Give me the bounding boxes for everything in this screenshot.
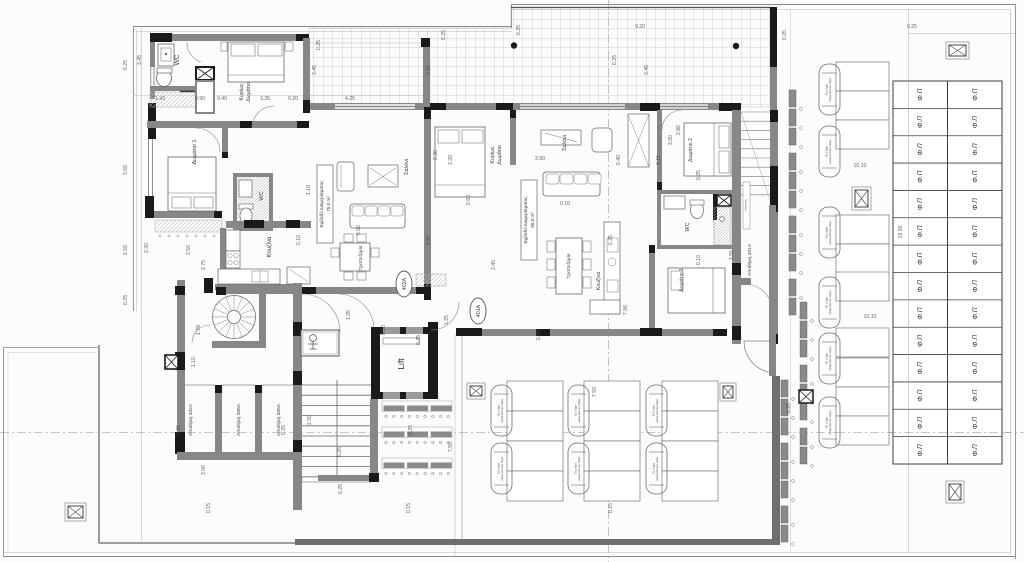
svg-text:0.25: 0.25 <box>786 403 792 413</box>
svg-text:2Μ χ 4μρν: 2Μ χ 4μρν <box>826 296 829 308</box>
svg-text:0.25: 0.25 <box>782 30 788 40</box>
svg-text:WC: WC <box>259 191 265 200</box>
svg-text:Κουζίνα: Κουζίνα <box>267 236 273 258</box>
svg-text:0.25: 0.25 <box>408 425 414 435</box>
svg-text:1.10: 1.10 <box>306 185 312 195</box>
svg-text:Αφαιρ.Θεσεων Παρκ.: Αφαιρ.Θεσεων Παρκ. <box>655 456 659 481</box>
svg-text:2.30: 2.30 <box>433 150 439 160</box>
svg-text:Lift: Lift <box>396 358 406 370</box>
svg-text:Φ.Π: Φ.Π <box>917 389 924 401</box>
svg-text:7.96: 7.96 <box>623 305 629 315</box>
svg-text:0.40: 0.40 <box>616 155 622 165</box>
svg-text:3.00: 3.00 <box>668 135 674 145</box>
svg-text:3.45: 3.45 <box>644 65 650 75</box>
svg-text:2.30: 2.30 <box>144 243 150 253</box>
svg-text:Δωμάτιο 1: Δωμάτιο 1 <box>678 268 685 292</box>
svg-text:75,0 m²: 75,0 m² <box>326 196 331 212</box>
svg-text:0.25: 0.25 <box>416 335 422 345</box>
svg-text:3.00: 3.00 <box>123 165 129 175</box>
svg-text:0.25: 0.25 <box>426 65 432 75</box>
svg-text:5.25: 5.25 <box>337 447 343 457</box>
svg-text:2.80: 2.80 <box>676 125 682 135</box>
svg-text:2Μ χ 4μρν: 2Μ χ 4μρν <box>826 83 829 95</box>
svg-text:0.30: 0.30 <box>176 425 182 435</box>
svg-text:Αφαιρ.Θεσεων Παρκ.: Αφαιρ.Θεσεων Παρκ. <box>828 290 832 315</box>
svg-text:Φ.Π: Φ.Π <box>972 417 979 429</box>
svg-text:2Μ χ 4μρν: 2Μ χ 4μρν <box>653 462 656 474</box>
svg-text:1.43: 1.43 <box>155 96 165 102</box>
svg-text:Εμβαδό Διαμερίσματος: Εμβαδό Διαμερίσματος <box>318 180 324 228</box>
svg-text:0.10: 0.10 <box>696 255 702 265</box>
svg-text:3.45: 3.45 <box>312 65 318 75</box>
svg-text:0.25: 0.25 <box>907 24 917 30</box>
svg-text:0.20: 0.20 <box>288 96 298 102</box>
svg-text:2Μ χ 4μρν: 2Μ χ 4μρν <box>653 404 656 416</box>
svg-text:Φ.Π: Φ.Π <box>972 116 979 128</box>
svg-text:Φ.Π: Φ.Π <box>917 198 924 210</box>
svg-text:0.15: 0.15 <box>206 503 212 513</box>
svg-text:Φ.Π: Φ.Π <box>917 362 924 374</box>
svg-text:Φ.Π: Φ.Π <box>917 116 924 128</box>
svg-text:2Μ χ 4μρν: 2Μ χ 4μρν <box>575 404 578 416</box>
svg-text:10,10: 10,10 <box>854 163 867 169</box>
svg-text:Κουζίνα: Κουζίνα <box>596 272 602 290</box>
svg-text:Φ.Π: Φ.Π <box>917 143 924 155</box>
svg-text:1.25: 1.25 <box>346 310 352 320</box>
svg-text:Φ.Π: Φ.Π <box>972 280 979 292</box>
svg-text:Αποθήκη 306Α: Αποθήκη 306Α <box>235 403 242 436</box>
svg-text:3.15: 3.15 <box>656 155 662 165</box>
svg-text:0.25: 0.25 <box>123 60 129 70</box>
svg-text:Φ.Π: Φ.Π <box>972 444 979 456</box>
svg-text:Κυρίως: Κυρίως <box>490 146 496 163</box>
svg-text:Φ.Π: Φ.Π <box>917 444 924 456</box>
svg-text:Αφαιρ.Θεσεων Παρκ.: Αφαιρ.Θεσεων Παρκ. <box>500 456 504 481</box>
svg-text:0.25: 0.25 <box>696 170 702 180</box>
svg-text:9.20: 9.20 <box>635 24 645 30</box>
svg-text:Φ.Π: Φ.Π <box>917 88 924 100</box>
svg-text:0.25: 0.25 <box>338 484 344 494</box>
svg-text:2Μ χ 4μρν: 2Μ χ 4μρν <box>498 404 501 416</box>
svg-text:0.25: 0.25 <box>608 235 614 245</box>
svg-text:Σαλόνι: Σαλόνι <box>561 134 568 151</box>
svg-text:Αφαιρ.Θεσεων Παρκ.: Αφαιρ.Θεσεων Παρκ. <box>828 346 832 371</box>
svg-text:Φ.Π: Φ.Π <box>917 225 924 237</box>
svg-text:0.25: 0.25 <box>441 30 447 40</box>
svg-text:2Μ χ 4μρν: 2Μ χ 4μρν <box>826 416 829 428</box>
svg-text:Αποθήκη 401Α: Αποθήκη 401Α <box>746 243 753 276</box>
svg-text:WC: WC <box>685 222 691 231</box>
svg-text:2.75: 2.75 <box>201 260 207 270</box>
svg-text:3.45: 3.45 <box>137 55 143 65</box>
svg-text:Τραπεζαρία: Τραπεζαρία <box>566 253 572 278</box>
svg-text:Φ.Π: Φ.Π <box>917 253 924 265</box>
svg-text:10,10: 10,10 <box>864 314 877 320</box>
svg-text:Αφαιρ.Θεσεων Παρκ.: Αφαιρ.Θεσεων Παρκ. <box>828 139 832 164</box>
svg-text:1.25: 1.25 <box>444 315 450 325</box>
svg-text:19,90: 19,90 <box>898 225 904 238</box>
svg-text:0.90: 0.90 <box>195 96 205 102</box>
svg-text:Αφαιρ.Θεσεων Παρκ.: Αφαιρ.Θεσεων Παρκ. <box>577 456 581 481</box>
svg-text:0.15: 0.15 <box>608 503 614 513</box>
svg-text:Φ.Π: Φ.Π <box>972 335 979 347</box>
svg-text:0.25: 0.25 <box>612 55 618 65</box>
svg-text:Φ.Π: Φ.Π <box>972 389 979 401</box>
svg-text:Αφαιρ.Θεσεων Παρκ.: Αφαιρ.Θεσεων Παρκ. <box>828 410 832 435</box>
svg-text:Φ.Π: Φ.Π <box>972 225 979 237</box>
svg-text:1.78: 1.78 <box>196 325 202 335</box>
svg-text:401A: 401A <box>476 304 482 317</box>
svg-text:Σαλόνι: Σαλόνι <box>403 158 410 175</box>
svg-text:2.50: 2.50 <box>123 245 129 255</box>
svg-text:7.50: 7.50 <box>592 387 598 397</box>
svg-text:Φ.Π: Φ.Π <box>972 362 979 374</box>
svg-text:Αφαιρ.Θεσεων Παρκ.: Αφαιρ.Θεσεων Παρκ. <box>577 398 581 423</box>
svg-text:Δωμάτιο: Δωμάτιο <box>245 82 252 102</box>
svg-text:2Μ χ 4μρν: 2Μ χ 4μρν <box>826 226 829 238</box>
svg-text:Φ.Π: Φ.Π <box>972 253 979 265</box>
svg-text:3.90: 3.90 <box>535 156 545 162</box>
svg-text:95,0 m²: 95,0 m² <box>530 212 535 228</box>
svg-text:Δωμάτιο: Δωμάτιο <box>496 145 503 165</box>
svg-text:Εμβαδό Διαμερίσματος: Εμβαδό Διαμερίσματος <box>522 196 528 244</box>
svg-text:Αφαιρ.Θεσεων Παρκ.: Αφαιρ.Θεσεων Παρκ. <box>655 398 659 423</box>
svg-text:Φ.Π: Φ.Π <box>972 88 979 100</box>
svg-text:0.25: 0.25 <box>516 25 522 35</box>
svg-text:4.25: 4.25 <box>345 96 355 102</box>
svg-text:Δωμάτιο 2: Δωμάτιο 2 <box>687 138 694 162</box>
svg-text:0.10: 0.10 <box>296 235 302 245</box>
svg-text:Δωμάτιο 1: Δωμάτιο 1 <box>191 140 198 165</box>
svg-text:Φ.Π: Φ.Π <box>972 170 979 182</box>
svg-text:Τραπεζαρία: Τραπεζαρία <box>358 245 364 270</box>
svg-text:0.25: 0.25 <box>426 235 432 245</box>
svg-text:2.45: 2.45 <box>491 260 497 270</box>
svg-text:Φ.Π: Φ.Π <box>972 198 979 210</box>
svg-text:2Μ χ 4μρν: 2Μ χ 4μρν <box>575 462 578 474</box>
svg-text:0.15: 0.15 <box>406 503 412 513</box>
svg-text:Φ.Π: Φ.Π <box>917 170 924 182</box>
svg-text:Φ.Π: Φ.Π <box>917 335 924 347</box>
svg-text:Φ.Π: Φ.Π <box>972 143 979 155</box>
svg-text:Αποθήκη 402Α: Αποθήκη 402Α <box>187 403 194 436</box>
svg-text:Αφαιρ.Θεσεων Παρκ.: Αφαιρ.Θεσεων Παρκ. <box>500 398 504 423</box>
svg-text:0.25: 0.25 <box>536 330 542 340</box>
svg-text:7,50: 7,50 <box>448 442 454 452</box>
svg-text:0.40: 0.40 <box>217 96 227 102</box>
svg-text:0.25: 0.25 <box>316 40 322 50</box>
svg-text:Κυρίως: Κυρίως <box>239 83 245 100</box>
svg-text:0.60: 0.60 <box>466 195 472 205</box>
svg-text:0.10: 0.10 <box>560 201 570 207</box>
svg-text:Φ.Π: Φ.Π <box>917 307 924 319</box>
svg-text:2Μ χ 4μρν: 2Μ χ 4μρν <box>498 462 501 474</box>
svg-text:WC: WC <box>174 54 181 65</box>
svg-text:0.25: 0.25 <box>281 425 287 435</box>
svg-text:5.60: 5.60 <box>356 225 362 235</box>
svg-text:Φ.Π: Φ.Π <box>917 417 924 429</box>
svg-text:3.20: 3.20 <box>448 155 454 165</box>
svg-text:3.35: 3.35 <box>260 96 270 102</box>
svg-text:2Μ χ 4μρν: 2Μ χ 4μρν <box>826 145 829 157</box>
svg-text:3.06: 3.06 <box>201 465 207 475</box>
svg-text:0.10: 0.10 <box>381 325 387 335</box>
svg-text:Φ.Π: Φ.Π <box>917 280 924 292</box>
svg-text:2Μ χ 4μρν: 2Μ χ 4μρν <box>826 352 829 364</box>
svg-text:402A: 402A <box>402 277 408 290</box>
svg-text:2.55: 2.55 <box>729 250 735 260</box>
svg-text:2.50: 2.50 <box>186 245 192 255</box>
svg-text:Φ.Π: Φ.Π <box>972 307 979 319</box>
svg-text:Αφαιρ.Θεσεων Παρκ.: Αφαιρ.Θεσεων Παρκ. <box>828 220 832 245</box>
svg-text:1.10: 1.10 <box>191 357 197 367</box>
svg-text:0.25: 0.25 <box>123 295 129 305</box>
svg-text:2.50: 2.50 <box>307 415 313 425</box>
svg-text:Αφαιρ.Θεσεων Παρκ.: Αφαιρ.Θεσεων Παρκ. <box>828 77 832 102</box>
svg-text:Ντουλάπες: Ντουλάπες <box>745 198 748 211</box>
